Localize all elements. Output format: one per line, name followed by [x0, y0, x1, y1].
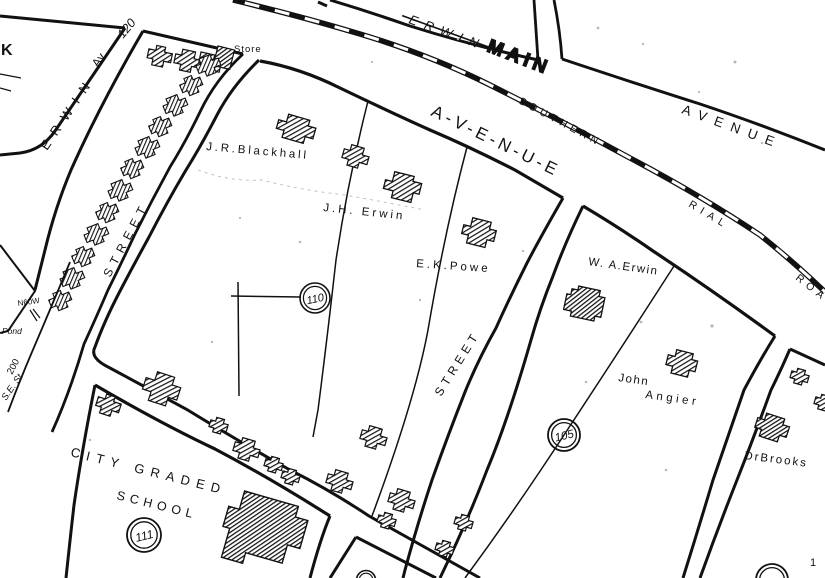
svg-text:K: K [1, 42, 13, 59]
svg-text:Pond: Pond [2, 326, 22, 336]
svg-text:Store: Store [234, 44, 262, 55]
svg-text:1: 1 [810, 557, 816, 569]
